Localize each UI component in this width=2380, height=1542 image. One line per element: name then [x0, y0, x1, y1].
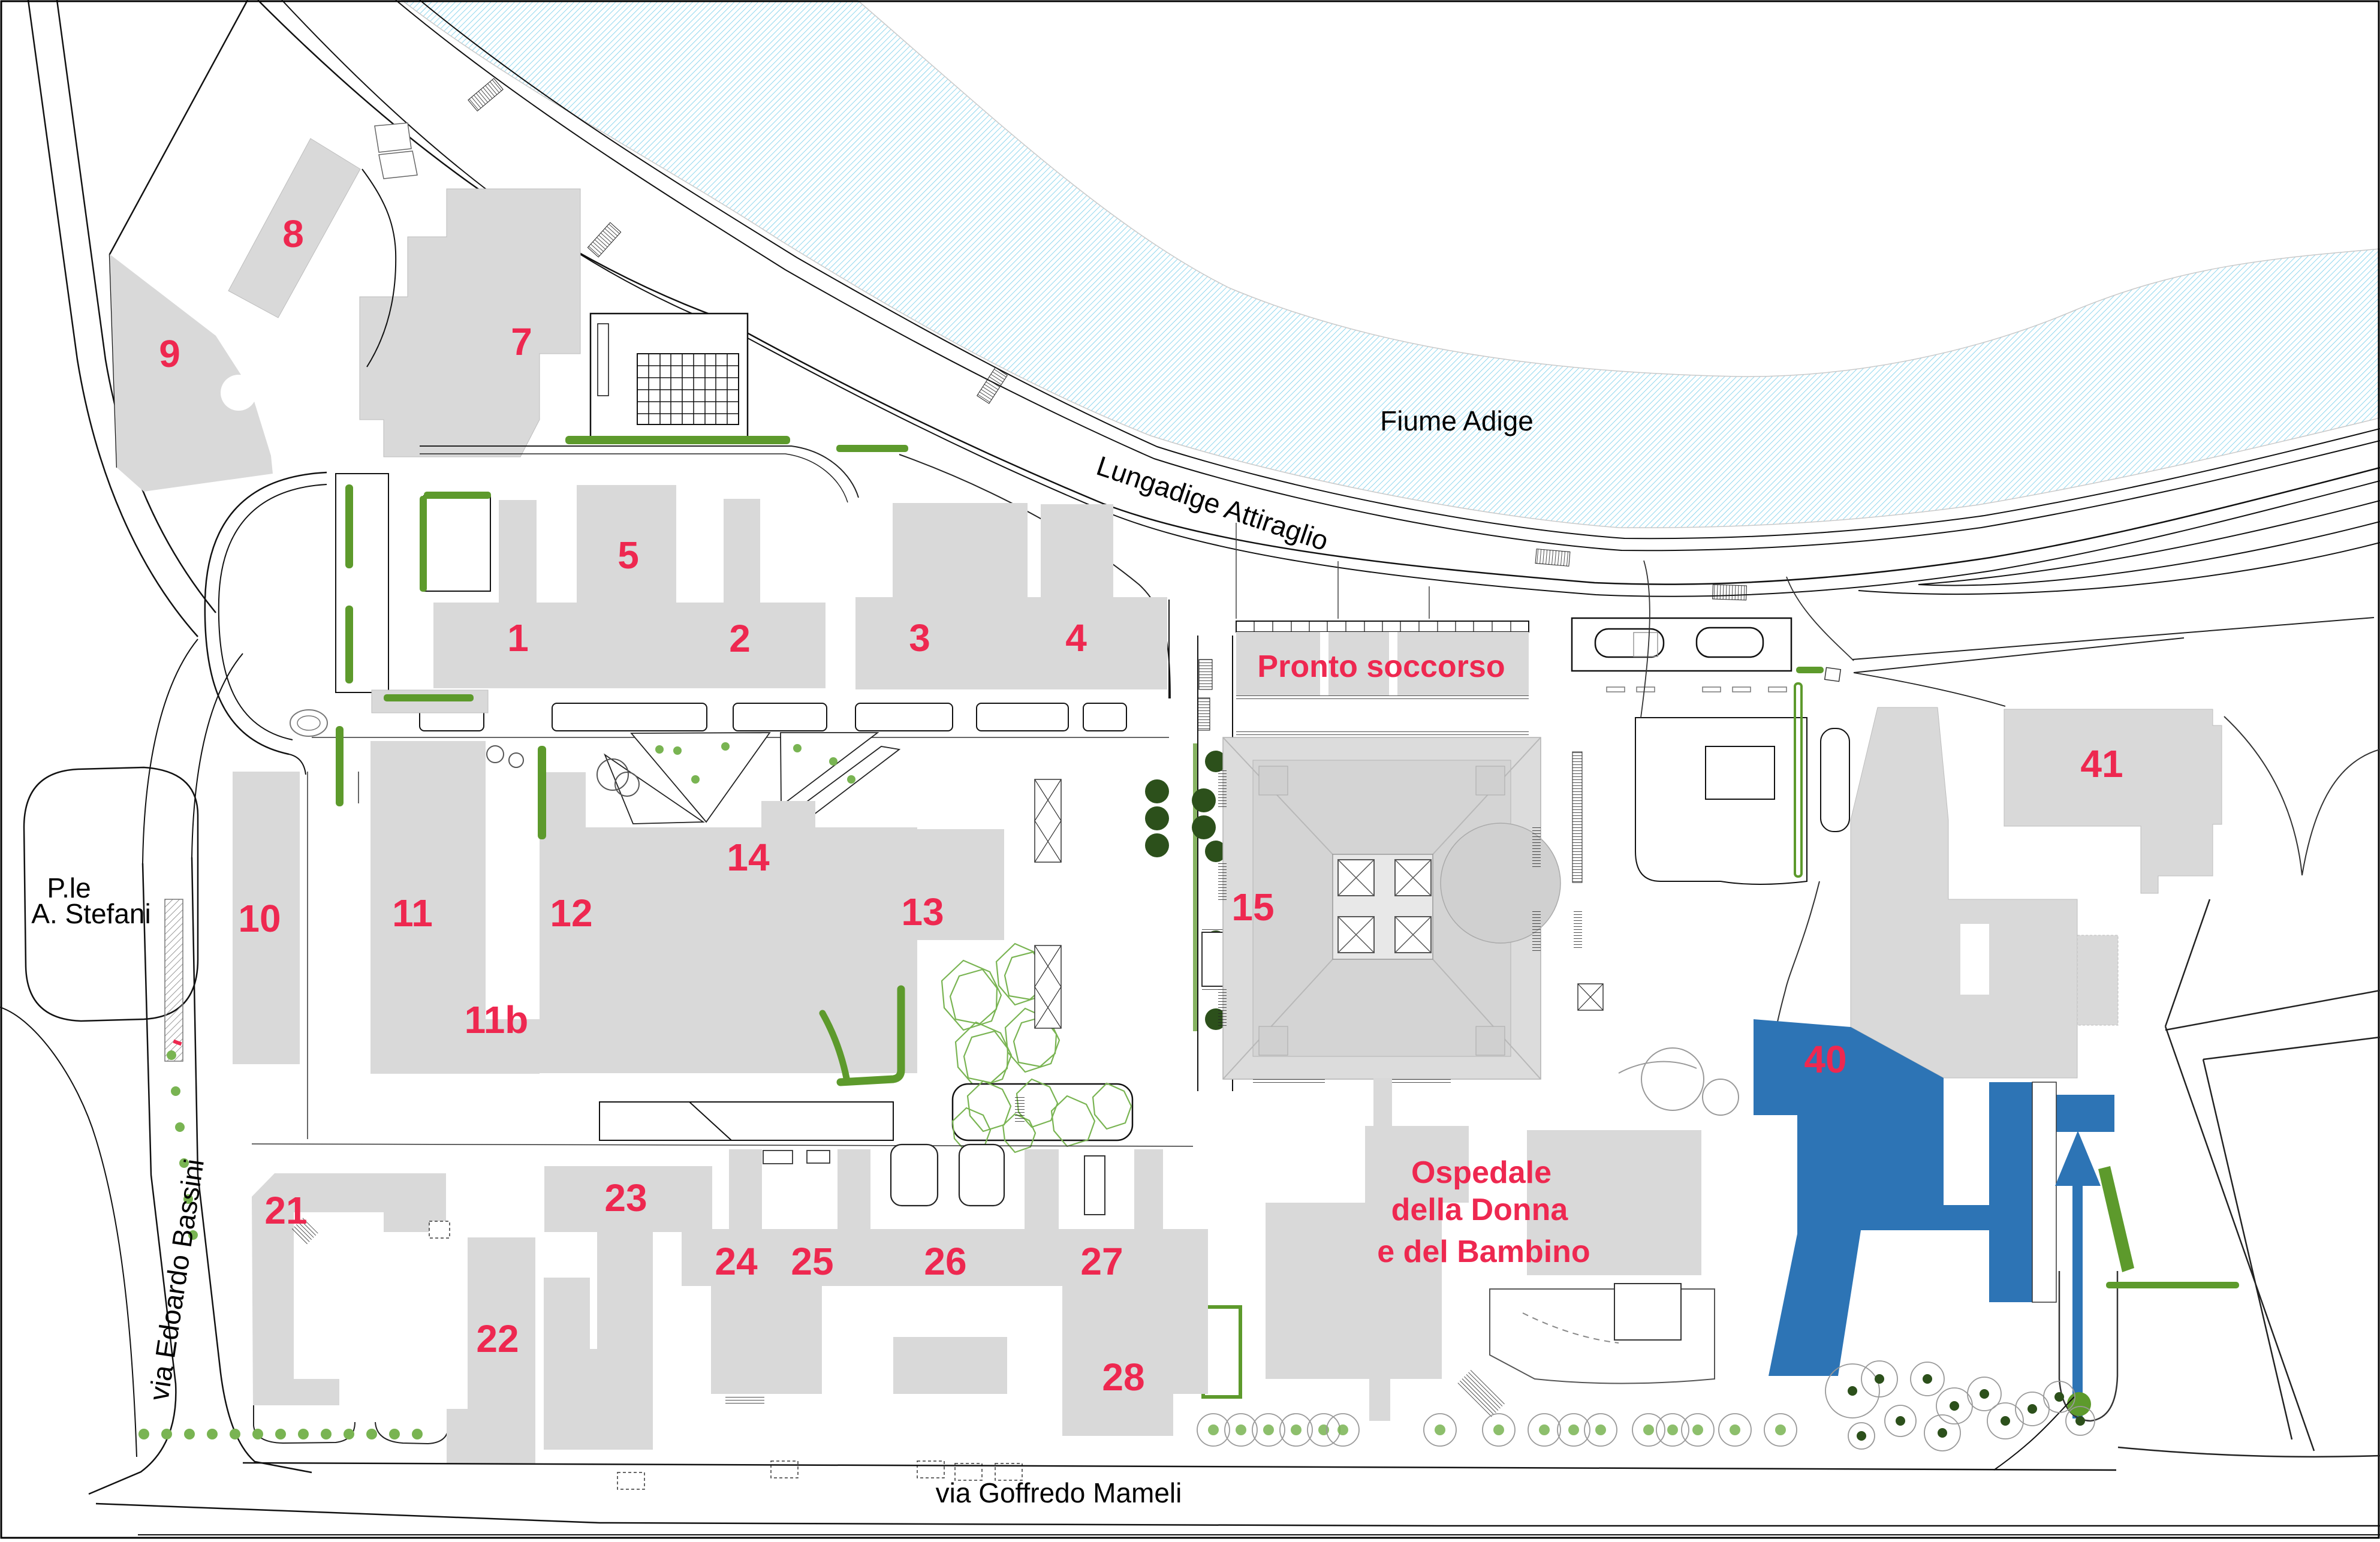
svg-text:12: 12 [550, 892, 592, 935]
svg-text:Fiume Adige: Fiume Adige [1380, 405, 1534, 436]
svg-text:26: 26 [924, 1240, 966, 1283]
svg-text:Ospedale: Ospedale [1411, 1155, 1551, 1190]
svg-text:8: 8 [282, 212, 304, 255]
svg-text:A. Stefani: A. Stefani [31, 898, 150, 929]
svg-text:23: 23 [604, 1176, 647, 1219]
svg-text:11: 11 [392, 892, 433, 935]
svg-text:7: 7 [511, 320, 532, 363]
svg-text:4: 4 [1065, 616, 1087, 659]
svg-text:24: 24 [715, 1240, 758, 1283]
svg-text:27: 27 [1080, 1240, 1123, 1283]
svg-text:via Goffredo Mameli: via Goffredo Mameli [936, 1477, 1182, 1508]
svg-text:e del Bambino: e del Bambino [1377, 1234, 1590, 1269]
svg-text:2: 2 [729, 617, 751, 660]
svg-text:della Donna: della Donna [1391, 1192, 1569, 1227]
svg-text:5: 5 [617, 534, 639, 577]
svg-text:13: 13 [901, 890, 944, 933]
svg-text:10: 10 [238, 897, 281, 940]
svg-text:25: 25 [791, 1240, 833, 1283]
svg-text:3: 3 [909, 616, 930, 659]
svg-text:14: 14 [727, 836, 770, 879]
svg-text:40: 40 [1804, 1038, 1846, 1081]
svg-text:28: 28 [1102, 1356, 1144, 1399]
svg-text:1: 1 [507, 616, 529, 659]
svg-text:9: 9 [159, 332, 180, 375]
svg-text:11b: 11b [465, 998, 529, 1041]
svg-text:41: 41 [2080, 742, 2123, 785]
svg-text:15: 15 [1231, 886, 1274, 929]
svg-text:21: 21 [264, 1189, 307, 1232]
svg-text:Pronto soccorso: Pronto soccorso [1257, 649, 1505, 684]
svg-text:22: 22 [476, 1317, 519, 1360]
